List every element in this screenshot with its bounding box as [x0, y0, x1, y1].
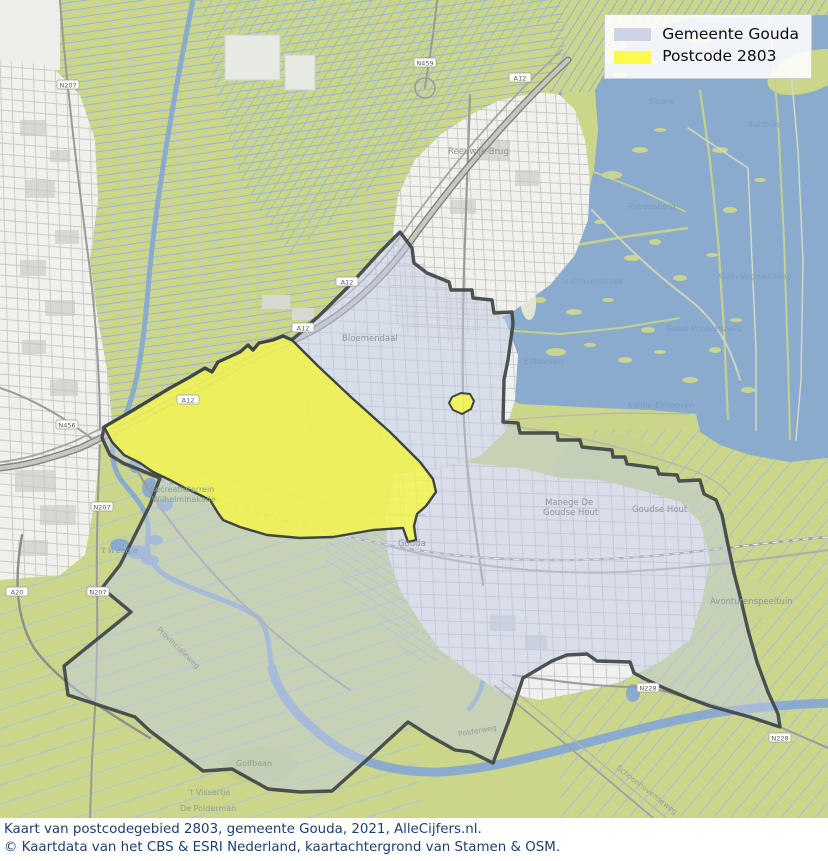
shield-n207-1: N207 — [59, 82, 76, 90]
label-s-gravenbroek: 's-Gravenbroek — [562, 277, 624, 286]
map-caption: Kaart van postcodegebied 2803, gemeente … — [0, 818, 828, 861]
legend-label-gemeente: Gemeente Gouda — [662, 25, 799, 44]
caption-attribution: © Kaartdata van het CBS & ESRI Nederland… — [4, 839, 828, 857]
legend-label-postcode: Postcode 2803 — [662, 47, 776, 66]
shield-n207-2: N207 — [93, 504, 110, 512]
label-klein-vogelenzang: Klein Vogelenzang — [718, 272, 792, 281]
label-t-weegje: 't Weegje — [100, 546, 138, 555]
caption-title: Kaart van postcodegebied 2803, gemeente … — [4, 821, 828, 839]
shield-n459: N459 — [416, 60, 433, 68]
shield-n207-3: N207 — [89, 589, 106, 597]
map-canvas: Bloemendaal Recreatieterrein Wilhelminak… — [0, 0, 828, 820]
label-avonturenspeeltuin: Avonturenspeeltuin — [710, 597, 793, 607]
label-de-polderman: De Polderman — [180, 804, 236, 813]
shield-n228-1: N228 — [639, 685, 656, 693]
label-ravensberg: Ravensberg — [628, 202, 676, 211]
shield-a12-4: A12 — [182, 397, 195, 405]
label-groot-vogelenzang: Groot Vogelenzang — [666, 324, 742, 333]
map-legend: Gemeente Gouda Postcode 2803 — [604, 14, 812, 79]
shield-a12-2: A12 — [341, 279, 354, 287]
label-wilhelminakade: Wilhelminakade — [152, 495, 216, 504]
map-screenshot: Bloemendaal Recreatieterrein Wilhelminak… — [0, 0, 828, 861]
label-surfplas: Surfplas — [748, 120, 781, 129]
label-recreatieterrein: Recreatieterrein — [150, 485, 214, 494]
label-goudse-hout-1: Goudse Hout — [543, 508, 599, 518]
shield-a12-1: A12 — [514, 75, 527, 83]
shield-n456: N456 — [58, 422, 75, 430]
legend-swatch-postcode — [614, 51, 651, 64]
label-bloemendaal: Bloemendaal — [342, 334, 398, 344]
label-t-vissertje: 't Vissertje — [188, 788, 230, 797]
shield-n228-2: N228 — [771, 735, 788, 743]
label-elfhoeven: Elfhoeven — [524, 357, 564, 366]
label-goudse-hout-2: Goudse Hout — [632, 505, 688, 515]
shield-a20: A20 — [11, 589, 24, 597]
label-golfbaan: Golfbaan — [236, 759, 272, 768]
legend-swatch-gemeente — [614, 28, 651, 41]
label-kleine-elfhoeven: Kleine Elfhoeven — [628, 401, 695, 410]
legend-row-gemeente: Gemeente Gouda — [614, 25, 799, 44]
label-sloene: Sloene — [648, 97, 675, 106]
legend-row-postcode: Postcode 2803 — [614, 47, 799, 66]
label-manege-de: Manege De — [545, 498, 593, 508]
shield-a12-3: A12 — [297, 325, 310, 333]
label-reeuwijk-brug: Reeuwijk-Brug — [448, 147, 509, 157]
label-gouda: Gouda — [398, 539, 426, 549]
